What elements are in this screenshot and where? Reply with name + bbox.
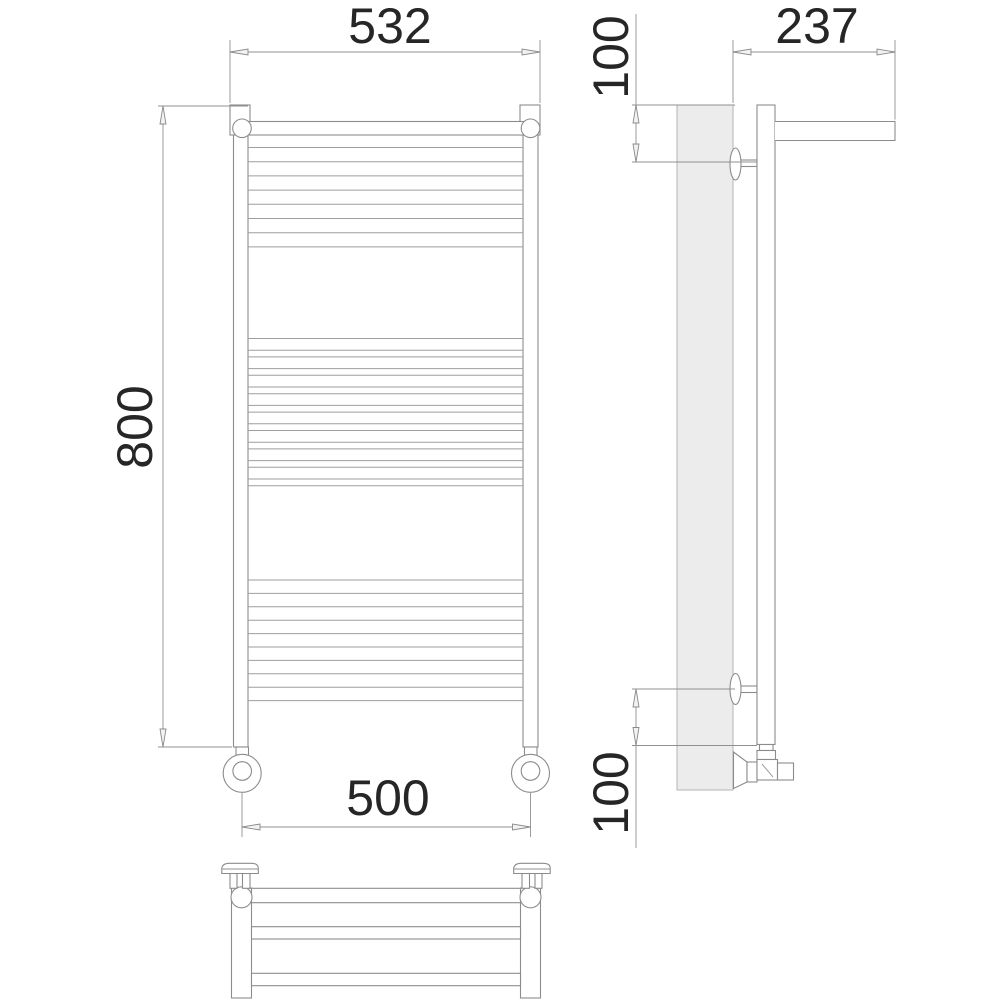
side-top-bracket — [730, 148, 757, 180]
side-shelf-arm — [775, 122, 895, 141]
plan-shelf-rail-2 — [252, 973, 521, 985]
dim-label-100-top: 100 — [583, 15, 639, 98]
front-rung-group-bottom — [248, 580, 523, 701]
top-plan-view — [222, 863, 550, 998]
plan-right-bracket — [514, 863, 551, 888]
front-rung-group-middle — [248, 339, 523, 486]
side-bottom-valve — [734, 745, 794, 789]
dimension-height: 800 — [107, 106, 248, 747]
front-right-weld-circle — [521, 119, 540, 138]
front-top-crossbar — [242, 122, 531, 136]
plan-right-tube-circle — [520, 887, 541, 908]
dim-label-100-bottom: 100 — [583, 751, 639, 834]
dim-label-532: 532 — [348, 0, 431, 54]
dimension-depth: 237 — [733, 0, 895, 120]
technical-drawing-page: 532 800 500 237 100 — [0, 0, 1000, 1000]
front-view — [223, 105, 549, 792]
side-vertical-tube — [757, 105, 775, 745]
dim-label-500: 500 — [346, 770, 429, 826]
front-left-weld-circle — [233, 119, 252, 138]
side-view — [677, 105, 895, 790]
front-right-tube — [523, 110, 538, 747]
plan-left-tube-circle — [231, 887, 252, 908]
dim-label-800: 800 — [107, 385, 163, 468]
front-left-foot — [223, 747, 261, 792]
dimension-top-width: 532 — [230, 0, 540, 103]
dim-label-237: 237 — [775, 0, 858, 54]
front-right-foot — [512, 747, 550, 792]
plan-shelf-rail-1 — [252, 927, 521, 939]
wall-panel — [677, 105, 733, 790]
front-rung-group-top — [248, 148, 523, 247]
front-left-tube — [234, 110, 249, 747]
towel-radiator-drawing: 532 800 500 237 100 — [0, 0, 1000, 1000]
plan-crossbar — [252, 888, 521, 902]
plan-left-bracket — [222, 863, 258, 888]
dimension-bottom-width: 500 — [242, 770, 531, 837]
